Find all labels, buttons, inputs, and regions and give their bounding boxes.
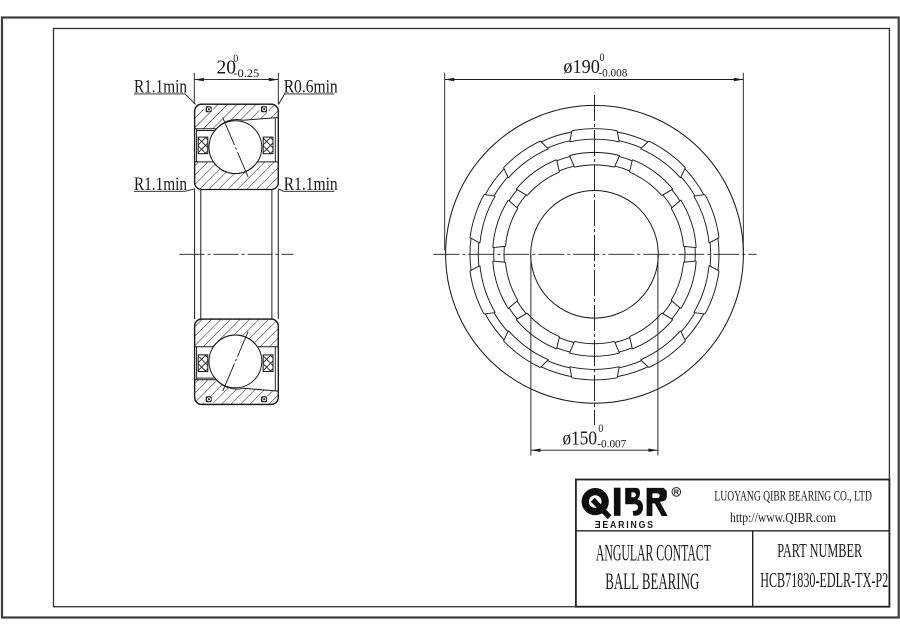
svg-text:-0.007: -0.007: [597, 438, 626, 450]
svg-text:R: R: [674, 488, 680, 497]
svg-text:0: 0: [600, 52, 605, 64]
svg-text:ø150: ø150: [563, 427, 598, 449]
svg-text:R1.1min: R1.1min: [134, 78, 187, 98]
svg-text:R0.6min: R0.6min: [284, 78, 338, 98]
svg-text:R1.1min: R1.1min: [284, 175, 338, 195]
svg-text:LUOYANG QIBR BEARING CO., LTD: LUOYANG QIBR BEARING CO., LTD: [714, 488, 872, 504]
svg-text:ANGULAR CONTACT: ANGULAR CONTACT: [596, 541, 711, 566]
svg-text:ƎEARINGS: ƎEARINGS: [595, 520, 655, 531]
svg-text:0: 0: [233, 53, 238, 65]
svg-text:BALL BEARING: BALL BEARING: [605, 569, 699, 594]
svg-text:-0.25: -0.25: [233, 68, 259, 80]
svg-text:-0.008: -0.008: [598, 67, 627, 79]
svg-text:http://www.QIBR.com: http://www.QIBR.com: [730, 511, 836, 526]
svg-text:HCB71830-EDLR-TX-P2: HCB71830-EDLR-TX-P2: [760, 568, 888, 592]
svg-text:ø190: ø190: [563, 56, 600, 78]
svg-text:R1.1min: R1.1min: [134, 175, 187, 195]
svg-text:PART NUMBER: PART NUMBER: [777, 540, 862, 562]
svg-text:0: 0: [598, 423, 603, 435]
